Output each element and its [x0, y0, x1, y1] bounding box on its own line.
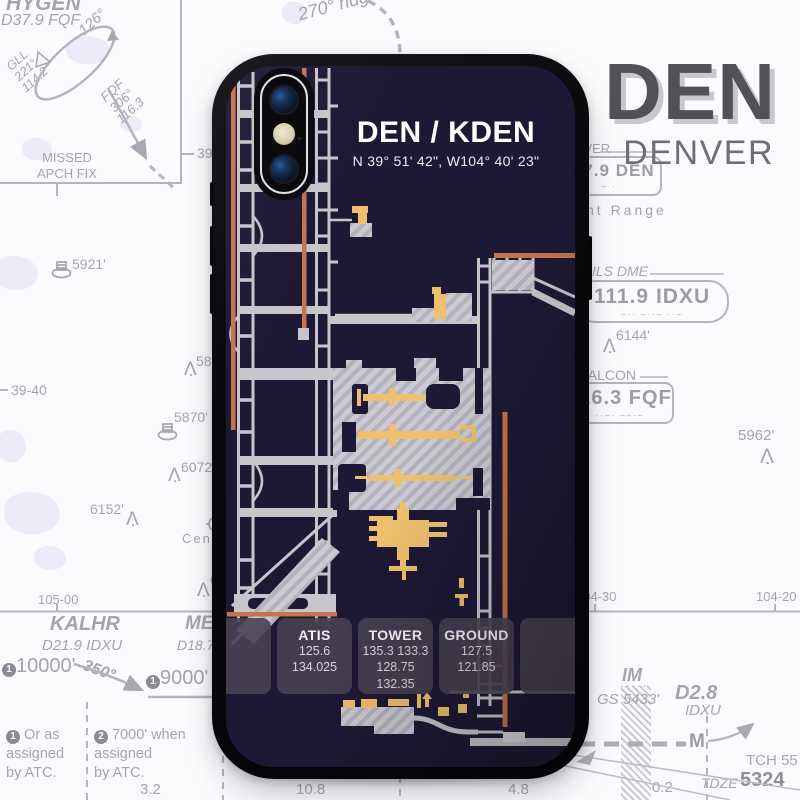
freq-card-tower: TOWER 135.3 133.3 128.75 132.35 — [358, 618, 433, 694]
freq-value: 128.75 — [358, 659, 433, 675]
volume-up-button — [210, 226, 214, 266]
city-heading: DENVER — [623, 134, 774, 173]
airport-code-heading: DEN — [604, 52, 776, 132]
freq-card-label: ATIS — [277, 627, 352, 643]
holding-arrow — [107, 30, 119, 41]
freq-value: 132.35 — [358, 676, 433, 692]
case-airport-title: DEN / KDEN — [296, 116, 575, 150]
freq-card-partial-right — [520, 618, 575, 694]
freq-value: 135.3 133.3 — [358, 643, 433, 659]
tank-symbol — [53, 262, 177, 440]
airport-diagram-print: DEN / KDEN N 39° 51' 42", W104° 40' 23" … — [226, 66, 575, 767]
mute-switch — [210, 182, 214, 206]
case-airport-coordinates: N 39° 51' 42", W104° 40' 23" — [296, 153, 575, 169]
freq-card-label: GROUND — [439, 627, 514, 643]
product-image: HYGEN D37.9 FQF 126° GLL 221° 114.2 FQF … — [0, 0, 800, 800]
power-button — [588, 236, 592, 300]
camera-mic-dot — [298, 137, 301, 140]
freq-value: 127.5 — [439, 643, 514, 659]
freq-value: 121.85 — [439, 659, 514, 675]
freq-value: 125.6 — [277, 643, 352, 659]
camera-flash — [273, 123, 295, 145]
glide-arrow — [576, 750, 596, 765]
volume-down-button — [210, 274, 214, 314]
phone-case: DEN / KDEN N 39° 51' 42", W104° 40' 23" … — [212, 54, 589, 779]
freq-card-label: TOWER — [358, 627, 433, 643]
freq-card-ground: GROUND 127.5 121.85 — [439, 618, 514, 694]
camera-lens-bottom — [269, 154, 299, 184]
frequency-card-row: ATIS 125.6 134.025 TOWER 135.3 133.3 128… — [226, 618, 575, 694]
freq-value: 134.025 — [277, 659, 352, 675]
camera-lens-top — [269, 85, 299, 115]
camera-module — [260, 74, 308, 194]
freq-card-partial-left — [226, 618, 271, 694]
freq-card-atis: ATIS 125.6 134.025 — [277, 618, 352, 694]
